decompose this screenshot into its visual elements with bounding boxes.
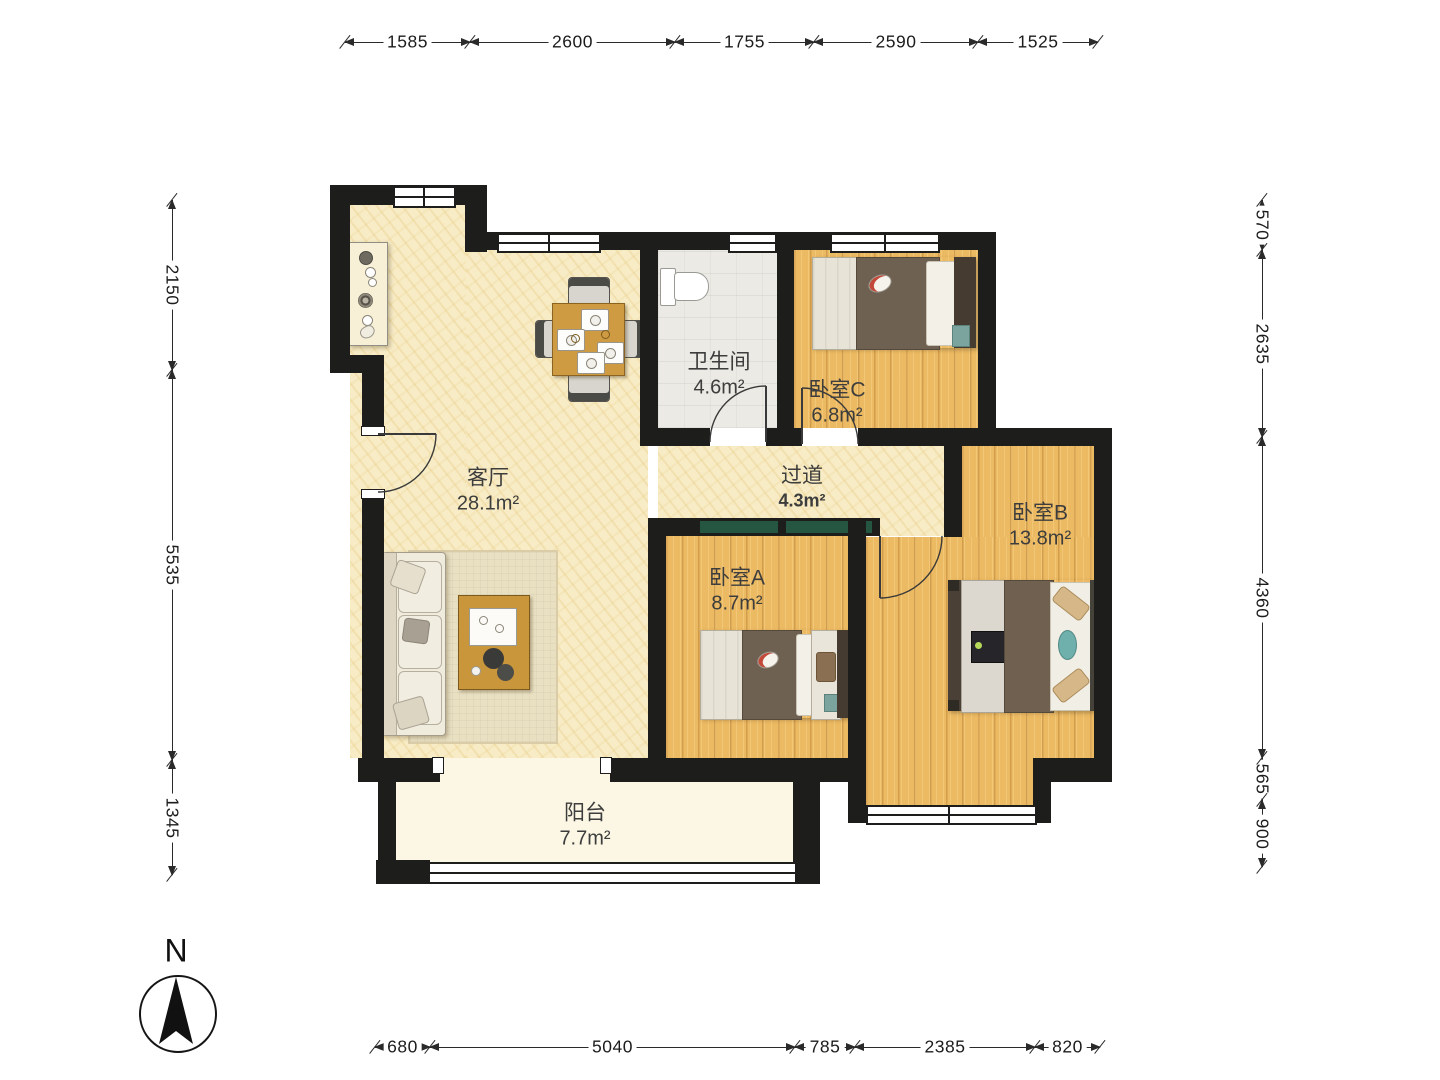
tray-cup xyxy=(495,624,504,633)
wall xyxy=(376,860,430,884)
sofa xyxy=(382,552,446,736)
dimension-right-4: 565 xyxy=(1262,758,1263,800)
compass-north-label: N xyxy=(164,933,187,970)
wall xyxy=(858,428,1112,446)
wall xyxy=(362,492,384,770)
dimension-value: 565 xyxy=(1252,760,1273,799)
table-cup xyxy=(601,330,610,339)
dimension-bottom-3: 785 xyxy=(795,1047,855,1048)
dimension-value: 680 xyxy=(383,1037,422,1058)
dimension-top-5: 1525 xyxy=(978,42,1098,43)
sink-bowl xyxy=(358,323,377,341)
dimension-right-3: 4360 xyxy=(1262,437,1263,758)
door-frame-cap xyxy=(361,426,385,436)
compass-needle-icon xyxy=(139,975,213,1049)
dimension-top-4: 2590 xyxy=(814,42,978,43)
wall xyxy=(848,518,866,823)
wall xyxy=(944,446,962,537)
dimension-value: 570 xyxy=(1252,206,1273,245)
dimension-left-3: 1345 xyxy=(172,760,173,875)
floor-bedroom-b xyxy=(866,758,1033,805)
stove-knob xyxy=(359,251,373,265)
bed-accent-pillow xyxy=(952,325,970,347)
window-divider xyxy=(948,807,950,823)
room-name: 卫生间 xyxy=(688,349,751,375)
window xyxy=(728,233,777,253)
dimension-value: 4360 xyxy=(1252,573,1273,622)
wall xyxy=(330,185,350,373)
kitchen-counter xyxy=(348,242,388,346)
wall xyxy=(640,428,710,446)
dimension-value: 2600 xyxy=(548,32,597,53)
sink-basin xyxy=(365,267,376,278)
sliding-door-panel xyxy=(700,521,778,533)
dimension-bottom-1: 680 xyxy=(375,1047,430,1048)
small-dish xyxy=(471,666,481,676)
dimension-right-5: 900 xyxy=(1262,800,1263,867)
room-label-balcony: 阳台 7.7m² xyxy=(559,800,610,851)
window-divider xyxy=(423,188,425,206)
room-name: 过道 xyxy=(781,464,823,490)
door-frame-cap xyxy=(432,757,444,774)
window-divider xyxy=(548,235,550,251)
wall xyxy=(330,355,384,373)
dimension-right-2: 2635 xyxy=(1262,250,1263,437)
bed-cushion xyxy=(816,652,836,682)
wall xyxy=(766,428,802,446)
room-name: 阳台 xyxy=(564,800,606,826)
room-area: 6.8m² xyxy=(811,404,862,429)
room-label-hallway: 过道 4.3m² xyxy=(778,464,825,513)
dimension-value: 2150 xyxy=(162,261,183,310)
place-setting xyxy=(581,309,609,331)
dimension-bottom-5: 820 xyxy=(1035,1047,1100,1048)
bed-duvet xyxy=(742,630,802,720)
window xyxy=(393,186,456,208)
window-bay xyxy=(866,805,1037,825)
room-label-bedroom-b: 卧室B 13.8m² xyxy=(1009,500,1071,551)
dimension-left-1: 2150 xyxy=(172,200,173,370)
room-name: 卧室C xyxy=(808,377,865,403)
bed-bedroom-a xyxy=(700,630,848,718)
room-label-bedroom-a: 卧室A 8.7m² xyxy=(709,565,765,616)
room-area: 13.8m² xyxy=(1009,527,1071,552)
room-label-bedroom-c: 卧室C 6.8m² xyxy=(808,377,865,428)
dimension-value: 5040 xyxy=(588,1037,637,1058)
wall xyxy=(793,758,820,884)
room-area: 28.1m² xyxy=(457,492,519,517)
dimension-bottom-2: 5040 xyxy=(430,1047,795,1048)
wall xyxy=(648,518,666,782)
sofa-pillow xyxy=(401,617,430,644)
room-label-bathroom: 卫生间 4.6m² xyxy=(688,349,751,400)
gas-burner xyxy=(358,293,373,308)
room-area: 4.6m² xyxy=(693,376,744,401)
dimension-value: 5535 xyxy=(162,541,183,590)
floor-plan-canvas: 1585 2600 1755 2590 1525 680 5040 785 23… xyxy=(0,0,1440,1080)
wall xyxy=(1094,428,1112,782)
wall xyxy=(648,758,866,782)
bed-accent-pillow xyxy=(1058,630,1077,660)
dimension-left-2: 5535 xyxy=(172,370,173,760)
bed-headboard xyxy=(837,630,848,718)
window-balcony xyxy=(428,862,797,884)
window-divider xyxy=(884,235,886,251)
room-label-living-room: 客厅 28.1m² xyxy=(457,465,519,516)
dimension-value: 785 xyxy=(806,1037,845,1058)
dining-table xyxy=(552,303,625,376)
dimension-value: 1525 xyxy=(1014,32,1063,53)
tv-indicator xyxy=(975,642,982,649)
table-cup xyxy=(571,334,580,343)
wall xyxy=(777,250,794,446)
wall xyxy=(978,233,996,428)
door-frame-cap xyxy=(361,489,385,499)
bowl xyxy=(497,664,514,681)
dimension-value: 2590 xyxy=(872,32,921,53)
bed-post xyxy=(948,700,959,711)
tray xyxy=(469,608,517,646)
window xyxy=(830,233,940,253)
dimension-value: 2385 xyxy=(921,1037,970,1058)
dimension-value: 900 xyxy=(1252,814,1273,853)
north-arrow xyxy=(159,977,193,1044)
wall xyxy=(640,250,658,446)
place-setting xyxy=(577,352,605,374)
dimension-value: 1755 xyxy=(720,32,769,53)
bed-post xyxy=(948,580,959,591)
room-area: 8.7m² xyxy=(711,592,762,617)
toilet-bowl xyxy=(674,272,709,301)
dimension-top-1: 1585 xyxy=(345,42,470,43)
door-frame-cap xyxy=(600,757,612,774)
bed-bedroom-c xyxy=(812,257,976,348)
wall xyxy=(362,373,384,434)
room-area: 7.7m² xyxy=(559,827,610,852)
dimension-value: 2635 xyxy=(1252,319,1273,368)
room-name: 卧室A xyxy=(709,565,765,591)
window xyxy=(497,233,601,253)
bed-accent-pillow xyxy=(824,694,838,712)
dimension-top-3: 1755 xyxy=(675,42,814,43)
wall xyxy=(358,758,440,782)
dimension-value: 1345 xyxy=(162,793,183,842)
dimension-right-1: 570 xyxy=(1262,200,1263,250)
dimension-bottom-4: 2385 xyxy=(855,1047,1035,1048)
bed-duvet xyxy=(1004,580,1054,713)
bed-bedroom-b xyxy=(948,580,1094,711)
coffee-table xyxy=(458,595,530,690)
room-name: 卧室B xyxy=(1012,500,1068,526)
dimension-value: 1585 xyxy=(383,32,432,53)
room-name: 客厅 xyxy=(467,465,509,491)
room-area: 4.3m² xyxy=(778,490,825,513)
dimension-top-2: 2600 xyxy=(470,42,675,43)
dimension-value: 820 xyxy=(1048,1037,1087,1058)
tray-cup xyxy=(479,616,488,625)
sink-basin xyxy=(368,278,377,287)
